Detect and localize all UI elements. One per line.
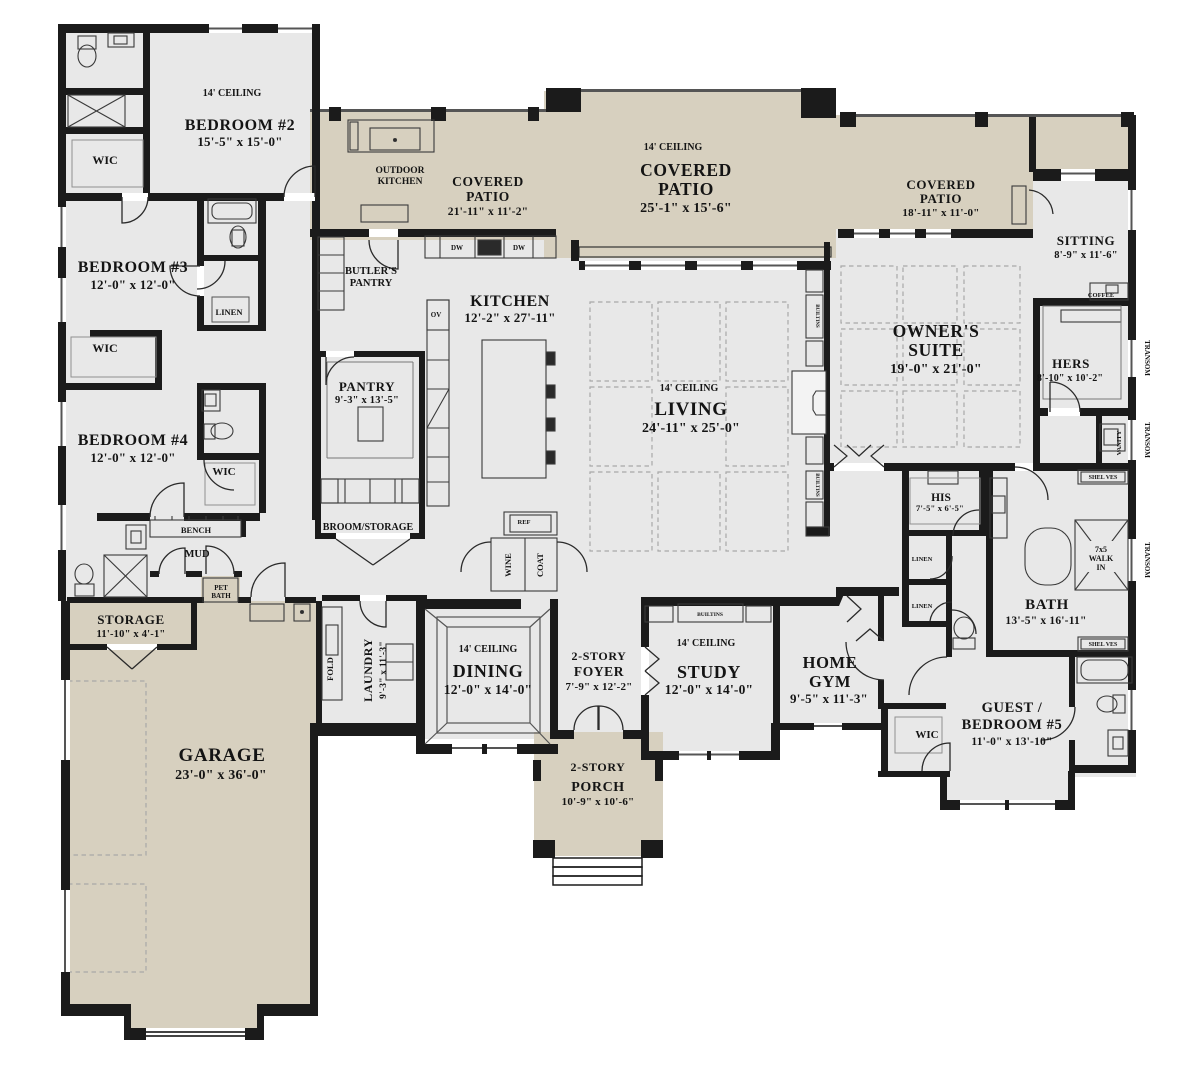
svg-text:TRANSOM: TRANSOM: [1143, 340, 1151, 376]
svg-text:PANTRY: PANTRY: [339, 379, 395, 394]
svg-text:14' CEILING: 14' CEILING: [203, 88, 262, 99]
svg-text:7'-9" x 12'-2": 7'-9" x 12'-2": [566, 681, 633, 693]
svg-text:LINEN: LINEN: [216, 307, 244, 317]
svg-text:WIC: WIC: [92, 153, 117, 167]
svg-text:9'-3" x 13'-5": 9'-3" x 13'-5": [335, 395, 399, 406]
svg-text:COFFEE: COFFEE: [1088, 292, 1114, 299]
svg-text:DW: DW: [451, 244, 463, 252]
svg-text:15'-5" x 15'-0": 15'-5" x 15'-0": [197, 134, 282, 149]
svg-text:REF: REF: [518, 519, 531, 526]
svg-text:21'-11" x 11'-2": 21'-11" x 11'-2": [448, 206, 529, 218]
svg-text:SHEL VES: SHEL VES: [1089, 475, 1118, 481]
svg-text:BUILTINS: BUILTINS: [814, 304, 819, 328]
svg-text:14' CEILING: 14' CEILING: [459, 644, 518, 655]
svg-text:11'-10" x 4'-1": 11'-10" x 4'-1": [97, 629, 166, 640]
svg-text:OWNER'S: OWNER'S: [893, 321, 980, 341]
svg-text:SHEL VES: SHEL VES: [1089, 642, 1118, 648]
svg-text:BEDROOM #2: BEDROOM #2: [185, 117, 295, 134]
svg-text:14' CEILING: 14' CEILING: [660, 383, 719, 394]
svg-text:PET: PET: [214, 584, 228, 592]
svg-text:OV: OV: [431, 311, 442, 319]
svg-text:14' CEILING: 14' CEILING: [677, 638, 736, 649]
svg-text:25'-1" x 15'-6": 25'-1" x 15'-6": [640, 201, 732, 216]
svg-text:WINE: WINE: [503, 553, 513, 577]
svg-text:WIC: WIC: [915, 729, 938, 741]
svg-text:WIC: WIC: [212, 466, 235, 478]
svg-text:OUTDOOR: OUTDOOR: [375, 166, 424, 176]
svg-text:12'-0" x 12'-0": 12'-0" x 12'-0": [90, 450, 175, 465]
svg-text:9'-5" x 11'-3": 9'-5" x 11'-3": [790, 691, 868, 706]
svg-text:12'-0" x 14'-0": 12'-0" x 14'-0": [665, 682, 753, 697]
svg-text:SITTING: SITTING: [1057, 233, 1115, 248]
svg-text:WIC: WIC: [92, 341, 117, 355]
svg-text:SUITE: SUITE: [908, 340, 964, 360]
svg-text:13'-5" x 16'-11": 13'-5" x 16'-11": [1005, 615, 1086, 627]
svg-text:PATIO: PATIO: [466, 189, 510, 204]
svg-text:7'-5" x 6'-5": 7'-5" x 6'-5": [916, 503, 964, 513]
svg-text:BUTLER'S: BUTLER'S: [345, 266, 397, 277]
svg-text:DINING: DINING: [453, 661, 524, 681]
svg-text:LAUNDRY: LAUNDRY: [361, 638, 375, 702]
svg-text:STUDY: STUDY: [677, 662, 741, 682]
svg-text:11'-0" x 13'-10": 11'-0" x 13'-10": [971, 736, 1052, 748]
svg-text:8'-10" x 10'-2": 8'-10" x 10'-2": [1037, 373, 1103, 384]
svg-text:LIVING: LIVING: [654, 399, 727, 420]
svg-text:7x5: 7x5: [1095, 545, 1107, 554]
svg-text:PANTRY: PANTRY: [350, 278, 393, 289]
svg-text:LINEN: LINEN: [912, 603, 933, 610]
svg-text:12'-0" x 12'-0": 12'-0" x 12'-0": [90, 277, 175, 292]
svg-text:14' CEILING: 14' CEILING: [644, 142, 703, 153]
svg-text:BEDROOM #5: BEDROOM #5: [962, 717, 1063, 733]
svg-text:GUEST /: GUEST /: [982, 700, 1043, 716]
svg-text:BATH: BATH: [211, 592, 231, 600]
svg-text:BUILTINS: BUILTINS: [697, 612, 723, 618]
svg-text:BEDROOM #4: BEDROOM #4: [78, 432, 188, 449]
svg-text:8'-9" x 11'-6": 8'-9" x 11'-6": [1054, 250, 1117, 261]
svg-text:TRANSOM: TRANSOM: [1143, 542, 1151, 578]
svg-text:STORAGE: STORAGE: [97, 612, 165, 627]
svg-text:MUD: MUD: [184, 549, 209, 560]
svg-text:DW: DW: [513, 244, 525, 252]
svg-text:WALK: WALK: [1089, 554, 1114, 563]
svg-text:KITCHEN: KITCHEN: [378, 177, 423, 187]
svg-text:PATIO: PATIO: [920, 191, 962, 206]
svg-text:COAT: COAT: [535, 553, 545, 577]
svg-text:18'-11" x 11'-0": 18'-11" x 11'-0": [902, 207, 979, 219]
svg-text:GYM: GYM: [809, 672, 851, 691]
svg-text:2-STORY: 2-STORY: [572, 649, 627, 663]
svg-text:24'-11" x 25'-0": 24'-11" x 25'-0": [642, 421, 740, 436]
svg-text:12'-2" x 27'-11": 12'-2" x 27'-11": [464, 310, 555, 325]
svg-text:BUILTINS: BUILTINS: [814, 473, 819, 497]
svg-text:LINEN: LINEN: [912, 556, 933, 563]
svg-text:10'-9" x 10'-6": 10'-9" x 10'-6": [562, 796, 635, 808]
svg-text:12'-0" x 14'-0": 12'-0" x 14'-0": [444, 682, 532, 697]
svg-text:PATIO: PATIO: [658, 179, 714, 199]
svg-text:23'-0" x 36'-0": 23'-0" x 36'-0": [175, 768, 267, 783]
svg-text:BENCH: BENCH: [181, 525, 212, 535]
svg-text:9'-3" x 11'-3": 9'-3" x 11'-3": [379, 641, 389, 699]
svg-text:PORCH: PORCH: [571, 780, 625, 795]
svg-text:COVERED: COVERED: [452, 174, 524, 189]
svg-text:2-STORY: 2-STORY: [571, 760, 626, 774]
svg-text:HOME: HOME: [803, 653, 858, 672]
svg-text:FOLD: FOLD: [325, 657, 335, 681]
svg-text:FOYER: FOYER: [574, 664, 624, 679]
svg-text:BATH: BATH: [1025, 597, 1069, 613]
svg-text:KITCHEN: KITCHEN: [470, 293, 550, 310]
svg-text:BEDROOM #3: BEDROOM #3: [78, 259, 188, 276]
svg-text:COVERED: COVERED: [906, 177, 975, 192]
svg-text:COVERED: COVERED: [640, 160, 732, 180]
svg-text:HERS: HERS: [1052, 356, 1090, 371]
svg-text:19'-0" x 21'-0": 19'-0" x 21'-0": [890, 362, 982, 377]
svg-text:TRANSOM: TRANSOM: [1143, 422, 1151, 458]
svg-text:GARAGE: GARAGE: [179, 745, 266, 766]
svg-text:IN: IN: [1097, 563, 1106, 572]
svg-text:VANITY: VANITY: [1116, 430, 1123, 455]
svg-text:BROOM/STORAGE: BROOM/STORAGE: [323, 522, 414, 533]
